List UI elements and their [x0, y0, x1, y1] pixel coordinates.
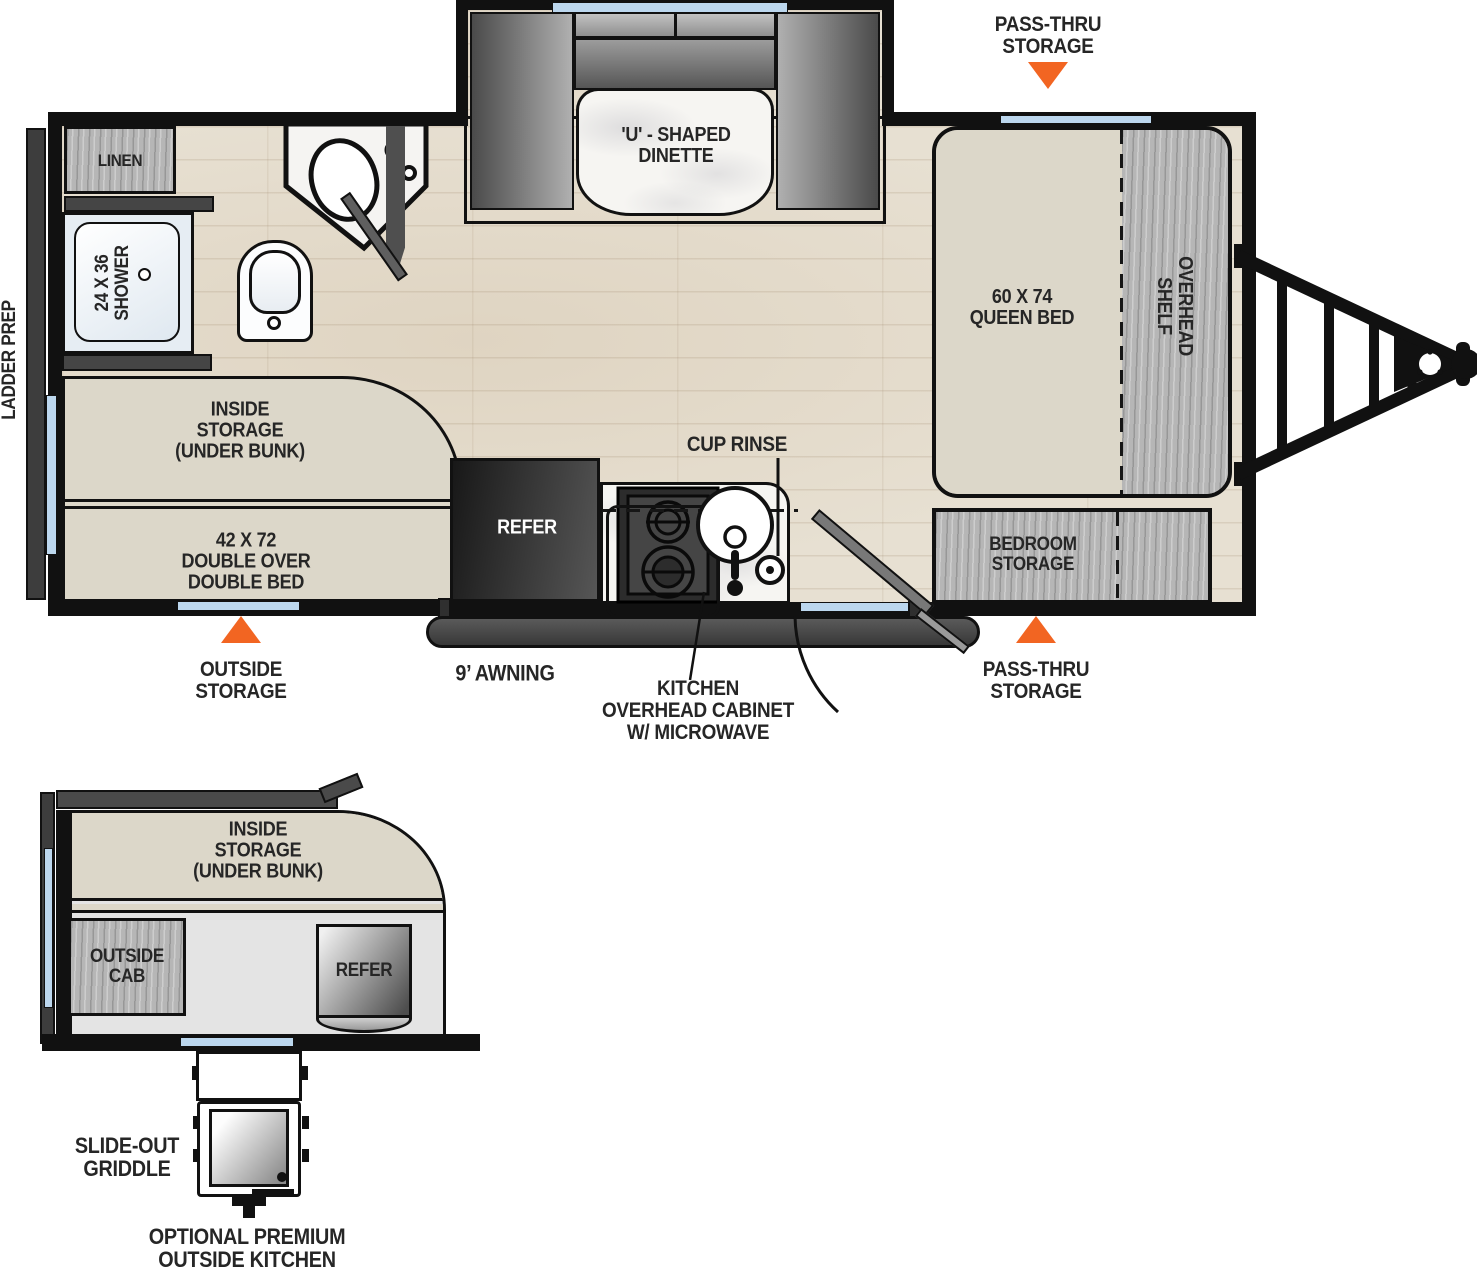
pass-thru-bottom-arrow-icon	[1016, 616, 1056, 643]
detail-top-bar	[56, 790, 338, 809]
detail-left-window	[44, 848, 53, 1008]
griddle-clamp-2	[193, 1149, 200, 1162]
queen-bed-label: 60 X 74 QUEEN BED	[970, 287, 1075, 329]
awning-bar	[426, 616, 980, 648]
griddle-tray-tick-right	[301, 1066, 308, 1080]
griddle-knob-icon	[277, 1172, 287, 1182]
detail-inside-storage-label: INSIDE STORAGE (UNDER BUNK)	[193, 820, 323, 883]
inside-storage-label: INSIDE STORAGE (UNDER BUNK)	[175, 400, 305, 463]
griddle-slide-tray	[196, 1051, 302, 1101]
awning-label: 9’ AWNING	[455, 661, 554, 684]
detail-top-bar-tip	[319, 773, 364, 804]
slide-out-griddle-label: SLIDE-OUT GRIDDLE	[75, 1134, 179, 1180]
double-bed-label: 42 X 72 DOUBLE OVER DOUBLE BED	[181, 531, 310, 594]
detail-refer-label: REFER	[336, 961, 393, 981]
bath-corner-sink-icon	[282, 120, 432, 252]
dinette-bench-left	[470, 12, 574, 210]
hitch-a-frame-icon	[1234, 236, 1477, 494]
bed-shelf-dashed-divider	[1120, 130, 1123, 494]
pass-thru-top-arrow-icon	[1028, 62, 1068, 89]
detail-outside-cab-label: OUTSIDE CAB	[90, 947, 164, 987]
griddle-tray-tick-left	[192, 1066, 199, 1080]
pass-thru-bottom-label: PASS-THRU STORAGE	[983, 659, 1089, 703]
detail-bottom-window	[180, 1037, 294, 1047]
dinette-label: 'U' - SHAPED DINETTE	[621, 125, 730, 167]
bunk-bottom-window	[177, 601, 300, 611]
linen-header-wall	[64, 196, 214, 212]
outside-storage-label: OUTSIDE STORAGE	[195, 659, 286, 703]
griddle-clamp-1	[193, 1116, 200, 1129]
ladder-prep-label: LADDER PREP	[0, 300, 20, 420]
griddle-clamp-4	[302, 1149, 309, 1162]
dinette-bench-back-cushion	[574, 38, 776, 90]
kitchen-sink-icon	[690, 480, 810, 610]
ladder-prep-wall	[26, 128, 46, 600]
optional-outside-kitchen-label: OPTIONAL PREMIUM OUTSIDE KITCHEN	[149, 1225, 346, 1270]
griddle-clamp-3	[302, 1116, 309, 1129]
toilet-flush-icon	[267, 316, 281, 330]
shower-drain-icon	[138, 268, 151, 281]
cup-rinse-label: CUP RINSE	[687, 434, 787, 456]
overhead-shelf-label: OVERHEAD SHELF	[1153, 256, 1195, 356]
griddle-drip-strip	[252, 1189, 294, 1195]
bedroom-top-window	[1000, 115, 1152, 124]
floorplan-diagram: LADDER PREP 'U' - SHAPED DINETTE LINEN 2…	[0, 0, 1477, 1270]
bath-bunk-wall	[62, 354, 212, 371]
shower-label: 24 X 36 SHOWER	[93, 245, 133, 320]
linen-label: LINEN	[98, 152, 143, 170]
griddle-support-leg	[243, 1205, 255, 1218]
detail-divider-strip	[59, 904, 443, 913]
kitchen-overhead-label: KITCHEN OVERHEAD CABINET W/ MICROWAVE	[602, 678, 794, 744]
outside-storage-arrow-icon	[221, 616, 261, 643]
entry-bottom-window	[800, 602, 910, 612]
toilet-bowl	[249, 250, 301, 314]
pass-thru-top-label: PASS-THRU STORAGE	[995, 14, 1101, 58]
bedroom-storage-label: BEDROOM STORAGE	[989, 535, 1076, 575]
refer-label: REFER	[497, 518, 557, 539]
dinette-bench-back-divider	[674, 12, 677, 38]
dinette-bench-right	[776, 12, 880, 210]
left-wall-window	[46, 395, 57, 555]
bunk-divider	[65, 499, 459, 509]
